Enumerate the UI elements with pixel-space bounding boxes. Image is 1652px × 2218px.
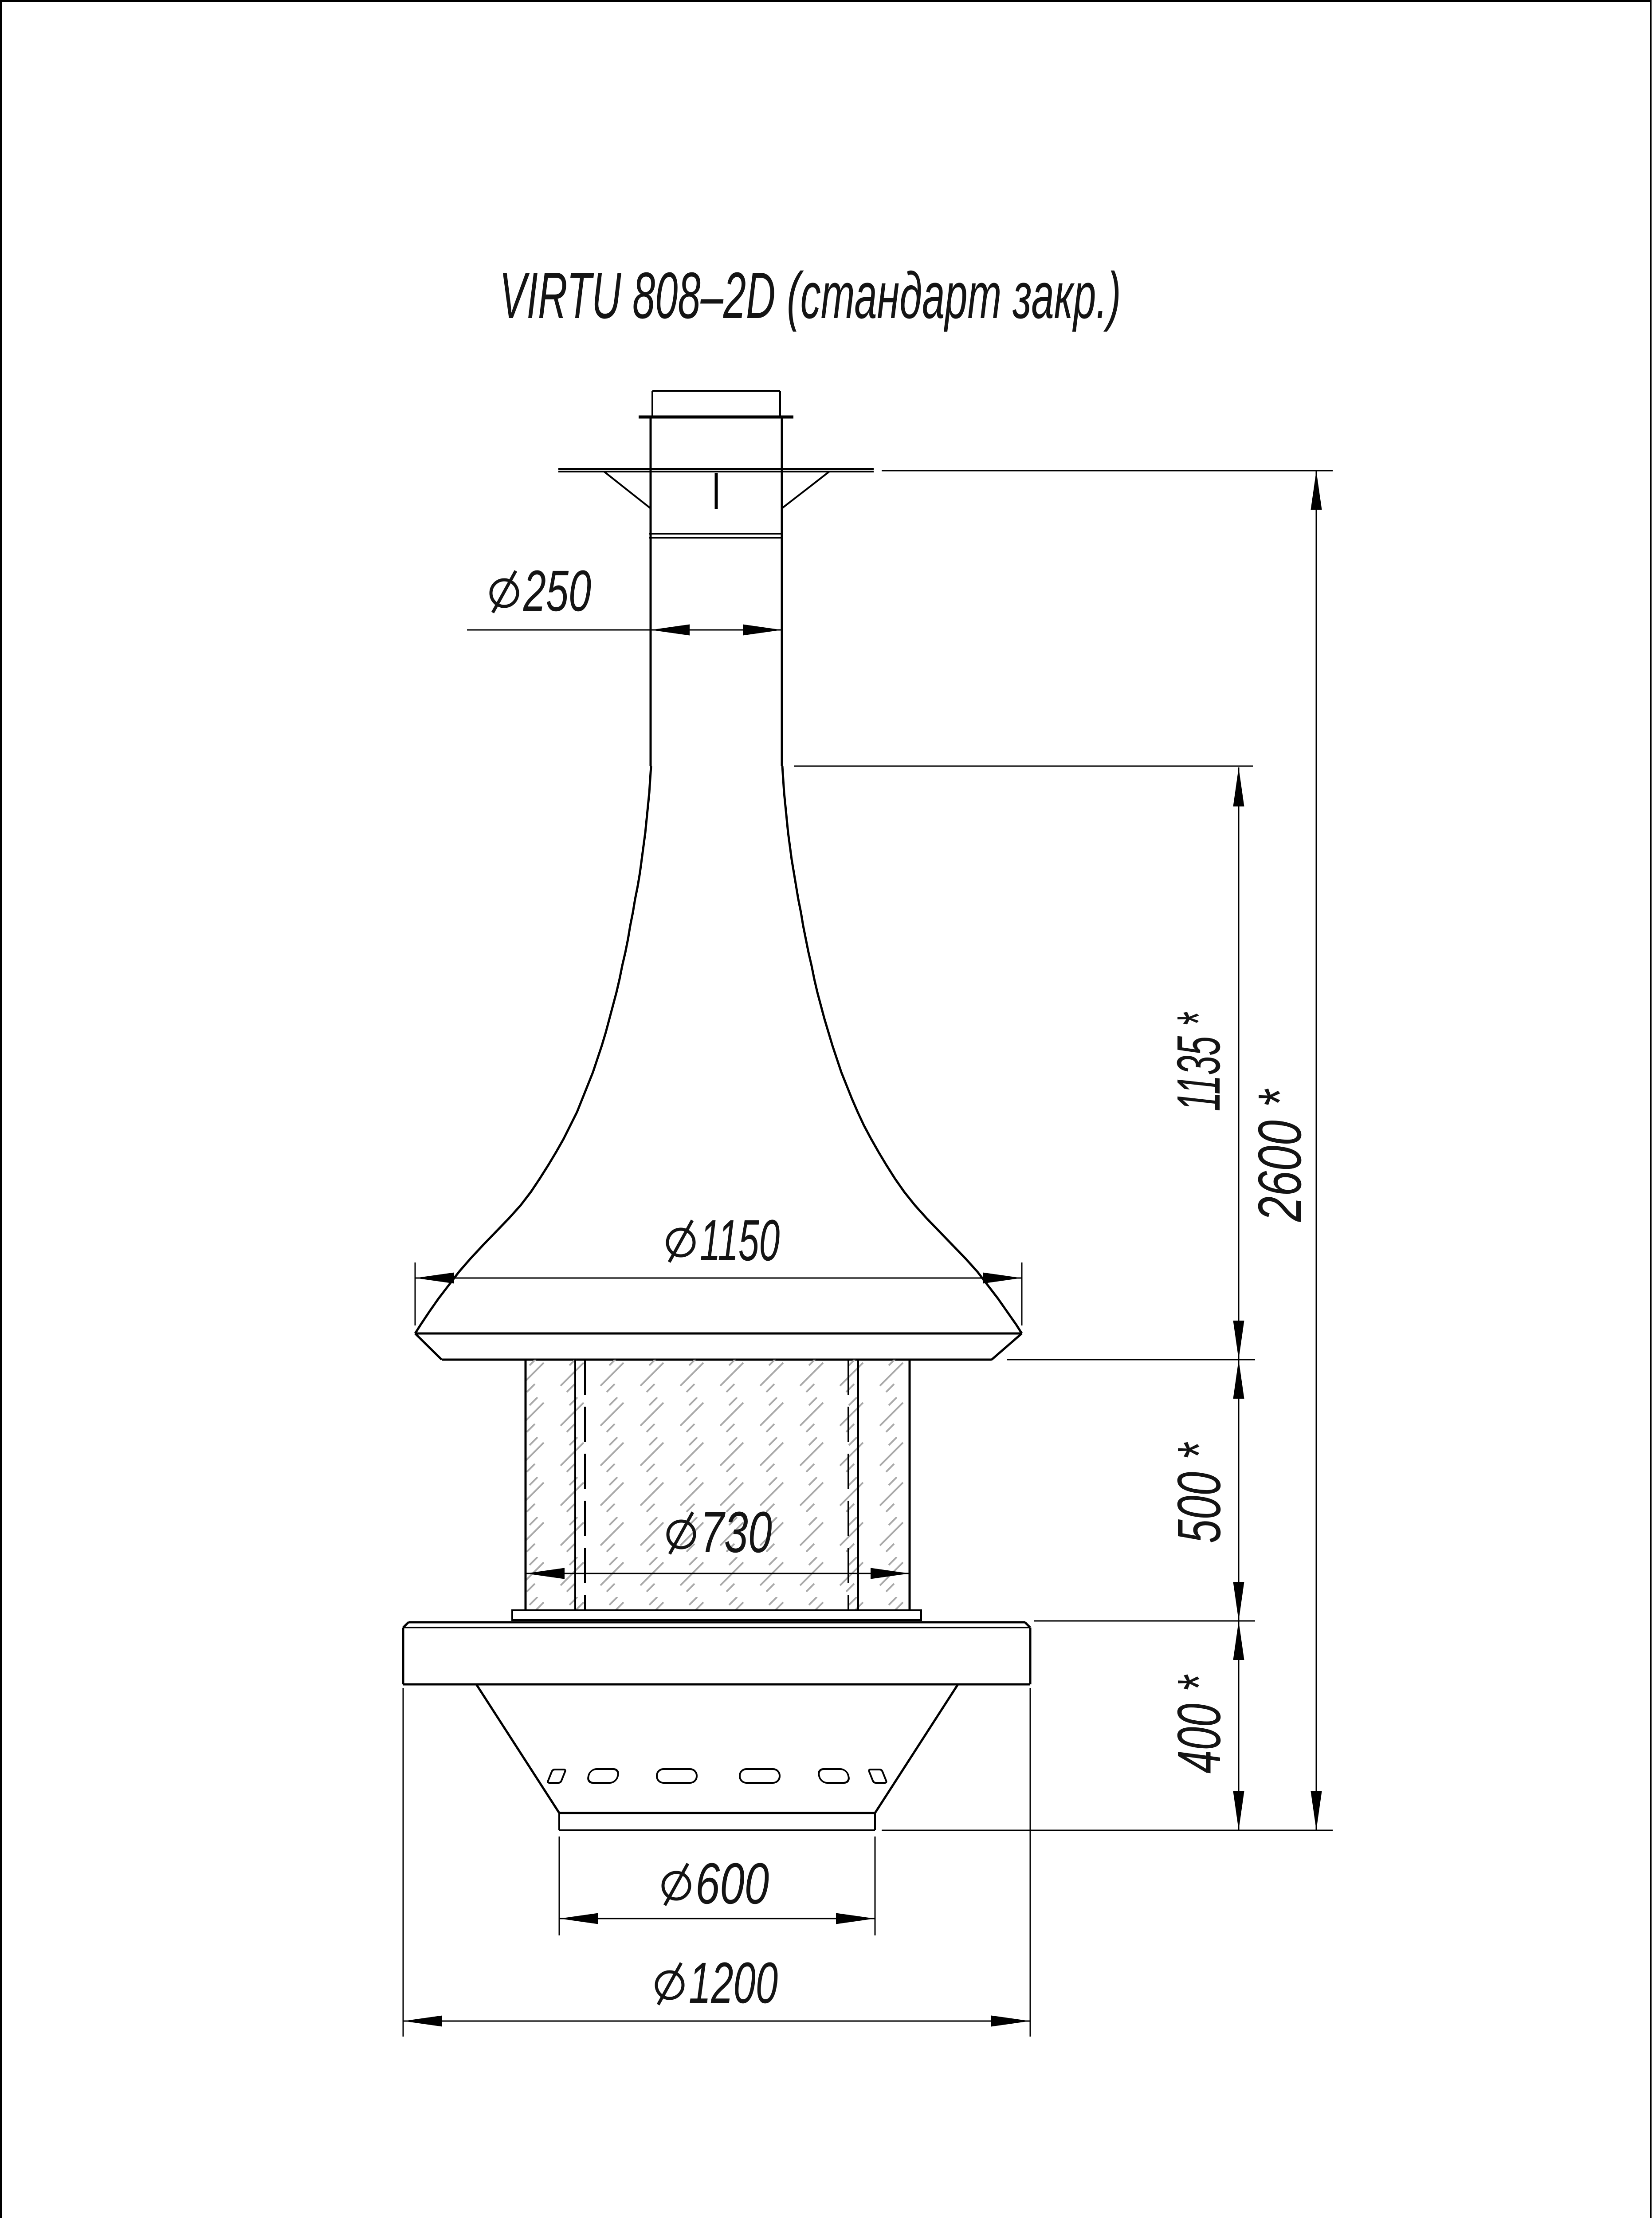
svg-text:600: 600 — [695, 1851, 769, 1916]
svg-text:250: 250 — [523, 558, 591, 623]
svg-text:500 *: 500 * — [1165, 1442, 1233, 1543]
svg-text:730: 730 — [700, 1500, 772, 1565]
svg-text:1150: 1150 — [700, 1208, 780, 1273]
svg-text:400 *: 400 * — [1165, 1674, 1233, 1774]
svg-text:1135 *: 1135 * — [1164, 1012, 1233, 1111]
svg-text:VIRTU 808–2D (стандарт закр.): VIRTU 808–2D (стандарт закр.) — [499, 259, 1121, 333]
svg-text:2600 *: 2600 * — [1245, 1089, 1314, 1222]
svg-text:1200: 1200 — [689, 1950, 778, 2015]
